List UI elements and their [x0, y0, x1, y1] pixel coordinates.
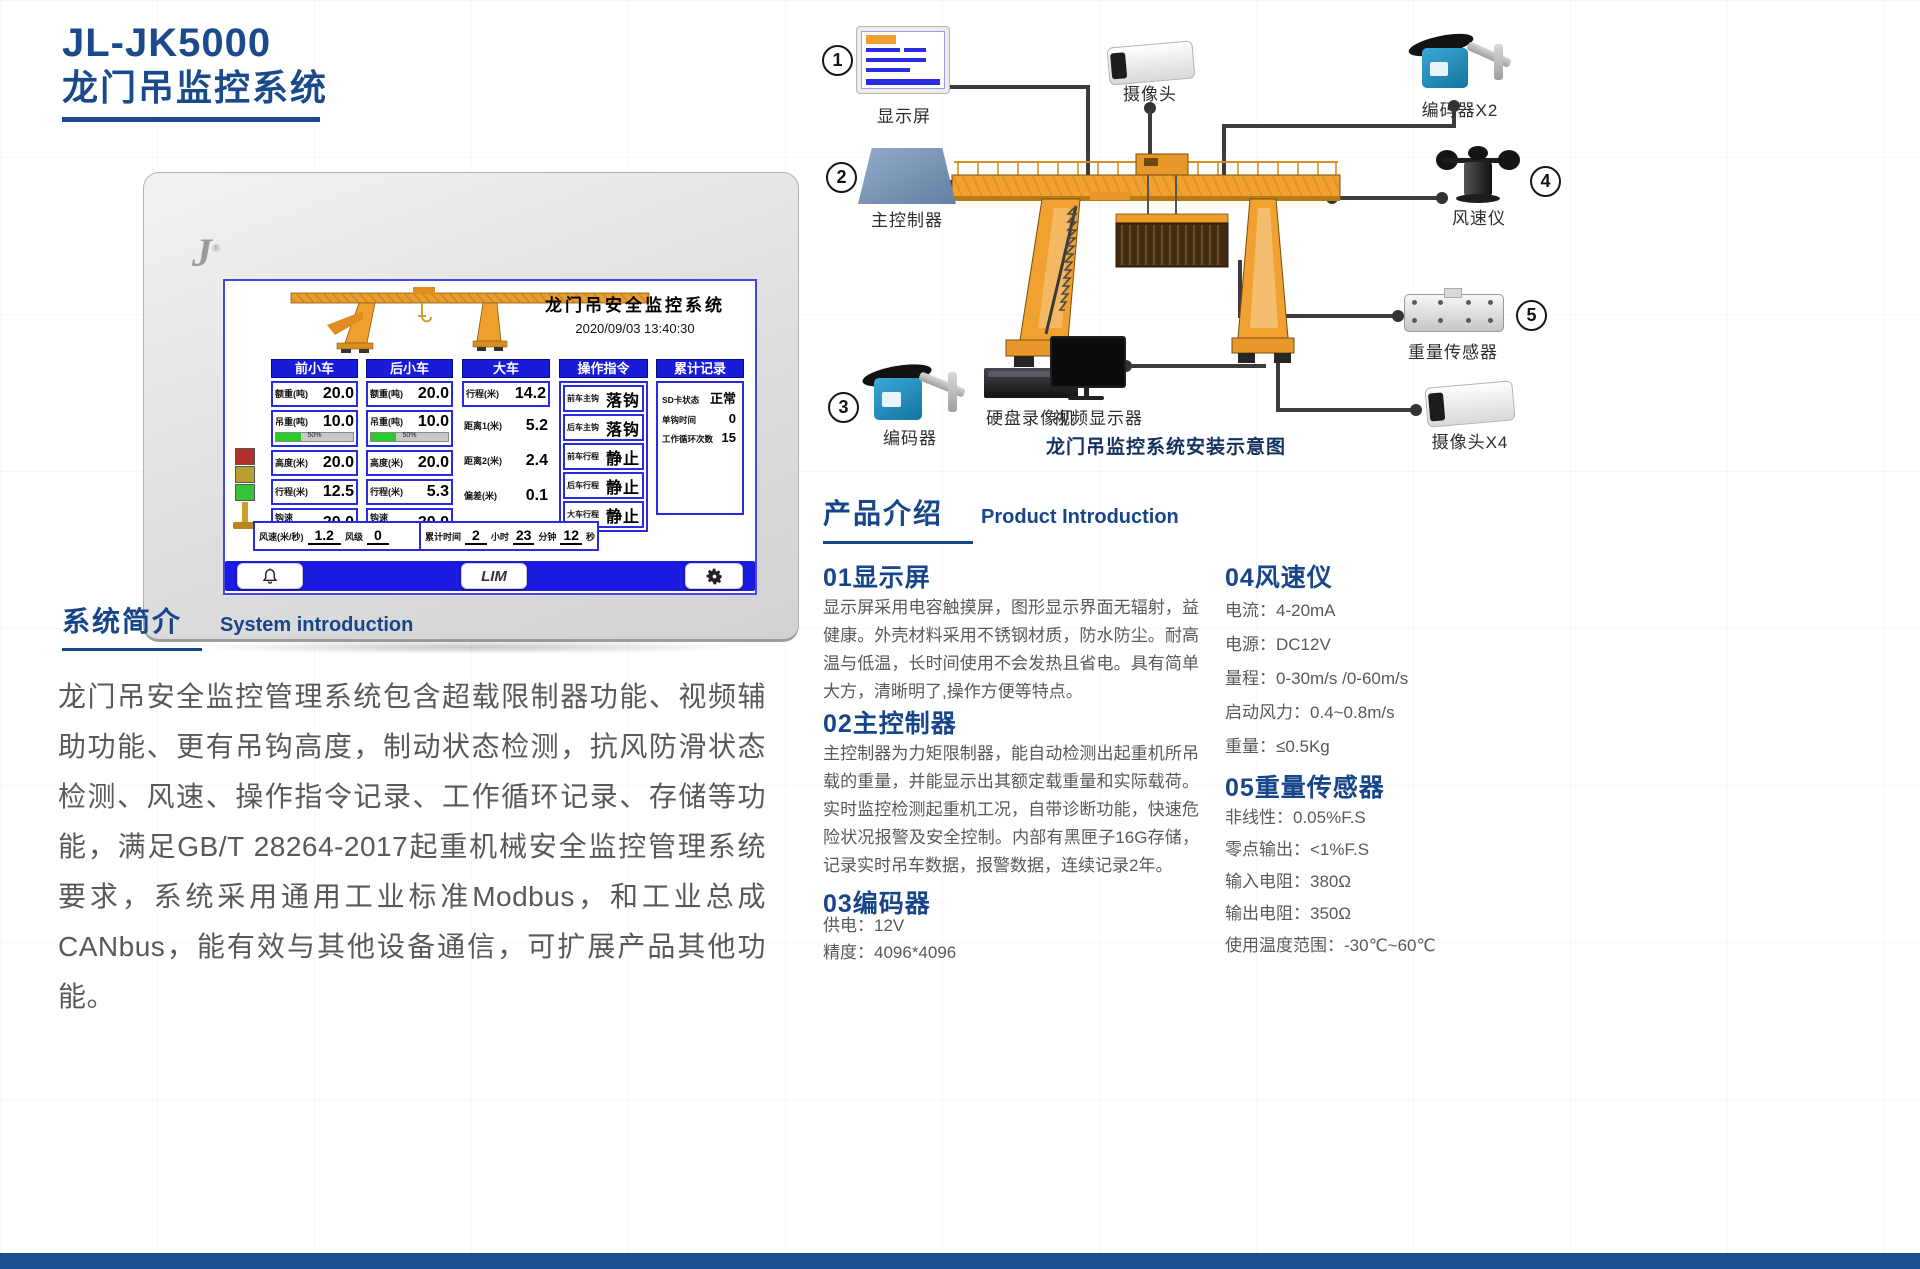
load-progress-bar: 50%: [275, 432, 354, 442]
runtime-seconds: 12: [560, 528, 582, 545]
system-intro-body: 龙门吊安全监控管理系统包含超载限制器功能、视频辅助功能、更有吊钩高度，制动状态检…: [58, 672, 766, 1022]
diagram-number-4: 4: [1530, 166, 1561, 197]
weight-sensor-hole: [1466, 300, 1471, 305]
section-heading-controller: 02主控制器: [823, 704, 957, 740]
connector-dot: [1392, 310, 1404, 322]
anemometer-specs: 电流：4-20mA 电源：DC12V 量程：0-30m/s /0-60m/s 启…: [1225, 594, 1408, 764]
connector-dot: [1436, 192, 1448, 204]
traffic-light-pole: [242, 502, 248, 522]
load-progress-label: 50%: [276, 432, 353, 439]
anemometer-cup: [1468, 146, 1488, 160]
panel-row: 行程(米) 12.5: [271, 479, 358, 505]
diagram-caption: 龙门吊监控系统安装示意图: [1036, 432, 1296, 459]
wind-info-box: 风速(米/秒) 1.2 风级 0: [253, 521, 421, 551]
page-title: JL-JK5000 龙门吊监控系统: [62, 20, 328, 122]
diagram-number-2: 2: [826, 162, 857, 193]
product-intro-title-en: Product Introduction: [981, 506, 1179, 529]
panel-row: 前车行程 静止: [563, 443, 644, 470]
row-label: 吊重(吨): [370, 418, 403, 427]
panel-header: 前小车: [271, 359, 358, 378]
spec-line: 输出电阻：350Ω: [1225, 898, 1436, 930]
display-screen-content: [861, 31, 945, 89]
row-label: 高度(米): [275, 459, 308, 468]
weight-sensor-hole: [1438, 318, 1443, 323]
display-label: 显示屏: [858, 102, 950, 127]
bell-icon: [259, 566, 281, 586]
wind-speed-value: 1.2: [308, 528, 341, 545]
panel-row: 后车行程 静止: [563, 472, 644, 499]
row-value: 14.2: [515, 385, 546, 403]
encoder-arm: [948, 372, 957, 412]
anemometer-body: [1464, 162, 1492, 196]
section-body-controller: 主控制器为力矩限制器，能自动检测出起重机所吊载的重量，并能显示出其额定载重量和实…: [823, 740, 1199, 880]
device-shadow: [190, 640, 750, 654]
panel-row: 单钩时间 0: [660, 409, 740, 428]
screen-datetime: 2020/09/03 13:40:30: [521, 321, 749, 336]
display-screen-graphic: [856, 26, 950, 94]
row-label: 工作循环次数: [662, 433, 713, 445]
mini-crane-graphic: [866, 35, 896, 44]
runtime-seconds-unit: 秒: [586, 530, 595, 543]
screen-title: 龙门吊安全监控系统: [521, 291, 749, 316]
row-value: 20.0: [418, 454, 449, 472]
product-name: 龙门吊监控系统: [62, 66, 328, 110]
panel-row: 额重(吨) 20.0: [366, 381, 453, 407]
camera-label: 摄像头: [1106, 80, 1194, 105]
connector-dot: [1410, 404, 1422, 416]
panel-row: 吊重(吨) 10.0 50%: [271, 410, 358, 447]
encoder-arm: [1466, 41, 1512, 68]
mini-ui-bar: [866, 48, 900, 52]
panel-row: 行程(米) 5.3: [366, 479, 453, 505]
spec-line: 零点输出：<1%F.S: [1225, 834, 1436, 866]
panel-row: 高度(米) 20.0: [366, 450, 453, 476]
traffic-light-red: [235, 448, 255, 465]
encoder-tag: [1430, 62, 1448, 76]
panel-row: 前车主钩 落钩: [563, 385, 644, 412]
panel-row: 偏差(米) 0.1: [462, 480, 550, 512]
brochure-page: JL-JK5000 龙门吊监控系统 J®: [0, 0, 1920, 1269]
spec-line: 量程：0-30m/s /0-60m/s: [1225, 662, 1408, 696]
row-value: 2.4: [526, 452, 548, 470]
weight-sensor-hole: [1412, 318, 1417, 323]
runtime-label: 累计时间: [425, 530, 461, 543]
spec-line: 电源：DC12V: [1225, 628, 1408, 662]
row-value: 0: [729, 411, 736, 426]
anemometer-cup: [1498, 150, 1520, 170]
panel-commands: 操作指令 前车主钩 落钩 后车主钩 落钩 前车行程 静止 后: [559, 359, 648, 532]
panel-row: 工作循环次数 15: [660, 428, 740, 447]
section-heading-weight-sensor: 05重量传感器: [1225, 768, 1385, 804]
section-heading-anemometer: 04风速仪: [1225, 558, 1333, 594]
video-monitor-label: 视频显示器: [1040, 404, 1156, 429]
row-label: 后车行程: [567, 480, 599, 491]
brand-logo: J®: [192, 229, 220, 276]
spec-line: 电流：4-20mA: [1225, 594, 1408, 628]
camera-x4-graphic: [1424, 380, 1515, 428]
panel-header: 操作指令: [559, 359, 648, 378]
encoder-tag: [882, 392, 901, 407]
mini-ui-bar: [866, 58, 926, 62]
row-label: 距离2(米): [464, 457, 502, 466]
runtime-minutes: 23: [513, 528, 535, 545]
panel-row: 吊重(吨) 10.0 50%: [366, 410, 453, 447]
row-label: 大车行程: [567, 509, 599, 520]
section-body-display: 显示屏采用电容触摸屏，图形显示界面无辐射，益健康。外壳材料采用不锈钢材质，防水防…: [823, 594, 1199, 706]
row-label: 行程(米): [275, 488, 308, 497]
section-heading-display: 01显示屏: [823, 558, 931, 594]
panel-row: 距离1(米) 5.2: [462, 410, 550, 442]
wind-speed-label: 风速(米/秒): [259, 530, 304, 543]
traffic-light-green: [235, 484, 255, 501]
panel-front-trolley: 前小车 额重(吨) 20.0 吊重(吨) 10.0 50% 高度(米) 20.0: [271, 359, 358, 538]
diagram-number-1: 1: [822, 45, 853, 76]
weight-sensor-specs: 非线性：0.05%F.S 零点输出：<1%F.S 输入电阻：380Ω 输出电阻：…: [1225, 802, 1436, 962]
row-value: 静止: [606, 445, 640, 469]
row-value: 20.0: [323, 454, 354, 472]
row-label: 距离1(米): [464, 422, 502, 431]
lim-button[interactable]: LIM: [461, 563, 527, 589]
row-value: 20.0: [418, 385, 449, 403]
panel-header: 大车: [462, 359, 550, 378]
row-label: 高度(米): [370, 459, 403, 468]
controller-graphic: [858, 148, 956, 204]
runtime-hours: 2: [465, 528, 487, 545]
system-intro-heading: 系统简介 System introduction: [62, 600, 413, 640]
panel-row: SD卡状态 正常: [660, 386, 740, 409]
row-value: 15: [722, 430, 736, 445]
panel-row: 高度(米) 20.0: [271, 450, 358, 476]
diagram-number-5: 5: [1516, 300, 1547, 331]
product-model: JL-JK5000: [62, 20, 328, 66]
row-label: 额重(吨): [370, 390, 403, 399]
spec-line: 供电：12V: [823, 912, 956, 939]
row-label: 前车主钩: [567, 393, 599, 404]
encoder-arm: [1494, 44, 1503, 80]
row-value: 正常: [710, 388, 736, 407]
camera-lens: [1110, 52, 1127, 79]
row-value: 静止: [606, 474, 640, 498]
runtime-minutes-unit: 分钟: [538, 530, 556, 543]
encoder-specs: 供电：12V 精度：4096*4096: [823, 912, 956, 966]
row-label: 额重(吨): [275, 390, 308, 399]
camera-x4-label: 摄像头X4: [1424, 428, 1516, 453]
runtime-info-box: 累计时间 2 小时 23 分钟 12 秒: [419, 521, 599, 551]
spec-line: 使用温度范围：-30℃~60℃: [1225, 930, 1436, 962]
product-intro-underline: [823, 541, 973, 544]
weight-sensor-hole: [1438, 300, 1443, 305]
load-progress-bar: 50%: [370, 432, 449, 442]
footer-bar: [0, 1253, 1920, 1269]
records-box: SD卡状态 正常 单钩时间 0 工作循环次数 15: [656, 381, 744, 515]
runtime-hours-unit: 小时: [491, 530, 509, 543]
gantry-crane-illustration: [950, 148, 1342, 448]
traffic-light-yellow: [235, 466, 255, 483]
panel-row: 行程(米) 14.2: [462, 381, 550, 407]
video-monitor-stand: [1084, 386, 1089, 396]
panel-row: 后车主钩 落钩: [563, 414, 644, 441]
spec-line: 非线性：0.05%F.S: [1225, 802, 1436, 834]
system-intro-title-en: System introduction: [220, 614, 413, 637]
video-monitor-base: [1068, 396, 1104, 400]
spec-line: 输入电阻：380Ω: [1225, 866, 1436, 898]
connector-line: [1334, 196, 1442, 200]
video-monitor-graphic: [1050, 336, 1126, 388]
encoder-label: 编码器: [870, 424, 950, 449]
panel-header: 后小车: [366, 359, 453, 378]
panel-gantry: 大车 行程(米) 14.2 距离1(米) 5.2 距离2(米) 2.4 偏差(米…: [462, 359, 550, 512]
mini-ui-footer: [866, 79, 940, 85]
weight-sensor-hole: [1466, 318, 1471, 323]
row-value: 0.1: [526, 487, 548, 505]
anemometer-base: [1456, 194, 1500, 203]
system-intro-title-zh: 系统简介: [62, 600, 182, 640]
camera-graphic: [1107, 40, 1196, 85]
panel-row: 额重(吨) 20.0: [271, 381, 358, 407]
row-label: SD卡状态: [662, 394, 699, 406]
mini-ui-bar: [904, 48, 926, 52]
mini-ui-bar: [866, 68, 910, 72]
row-value: 5.2: [526, 417, 548, 435]
gear-icon: [705, 567, 724, 586]
row-label: 前车行程: [567, 451, 599, 462]
spec-line: 精度：4096*4096: [823, 939, 956, 966]
commands-box: 前车主钩 落钩 后车主钩 落钩 前车行程 静止 后车行程 静止: [559, 381, 648, 532]
weight-sensor-hole: [1412, 300, 1417, 305]
row-value: 20.0: [323, 385, 354, 403]
display-device-mockup: J® 龙门吊安全监控系统: [143, 172, 799, 642]
title-underline: [62, 117, 320, 122]
panel-records: 累计记录 SD卡状态 正常 单钩时间 0 工作循环次数 15: [656, 359, 744, 515]
row-label: 吊重(吨): [275, 418, 308, 427]
row-value: 10.0: [323, 413, 354, 431]
camera-lens: [1428, 392, 1445, 421]
row-value: 静止: [606, 503, 640, 527]
system-intro-underline: [62, 648, 202, 651]
screen-toolbar: LIM: [225, 561, 755, 591]
row-label: 后车主钩: [567, 422, 599, 433]
row-value: 12.5: [323, 483, 354, 501]
row-label: 行程(米): [466, 390, 499, 399]
row-value: 落钩: [606, 387, 640, 411]
panel-header: 累计记录: [656, 359, 744, 378]
weight-sensor-hole: [1488, 300, 1493, 305]
row-value: 10.0: [418, 413, 449, 431]
connector-line: [944, 85, 1090, 89]
monitor-screen: 龙门吊安全监控系统 2020/09/03 13:40:30 前小车 额重(吨) …: [223, 279, 757, 595]
product-intro-heading: 产品介绍 Product Introduction: [823, 492, 1179, 532]
diagram-number-3: 3: [828, 392, 859, 423]
wind-scale-label: 风级: [345, 530, 363, 543]
connector-line: [1222, 124, 1456, 128]
panel-row: 距离2(米) 2.4: [462, 445, 550, 477]
panel-rear-trolley: 后小车 额重(吨) 20.0 吊重(吨) 10.0 50% 高度(米) 20.0: [366, 359, 453, 538]
spec-line: 重量：≤0.5Kg: [1225, 730, 1408, 764]
product-intro-title-zh: 产品介绍: [823, 492, 943, 532]
weight-sensor-tab: [1444, 288, 1462, 298]
weight-sensor-hole: [1488, 318, 1493, 323]
row-label: 偏差(米): [464, 492, 497, 501]
weight-sensor-label: 重量传感器: [1398, 338, 1508, 363]
row-label: 单钩时间: [662, 414, 696, 426]
row-value: 5.3: [427, 483, 449, 501]
settings-button[interactable]: [685, 563, 743, 589]
row-label: 行程(米): [370, 488, 403, 497]
row-value: 落钩: [606, 416, 640, 440]
wind-scale-value: 0: [367, 528, 389, 545]
load-progress-label: 50%: [371, 432, 448, 439]
anemometer-label: 风速仪: [1440, 204, 1518, 229]
controller-label: 主控制器: [860, 206, 954, 231]
spec-line: 启动风力：0.4~0.8m/s: [1225, 696, 1408, 730]
alarm-bell-button[interactable]: [237, 563, 303, 589]
encoder-x2-label: 编码器X2: [1408, 96, 1512, 121]
traffic-light-indicator: [233, 447, 257, 529]
